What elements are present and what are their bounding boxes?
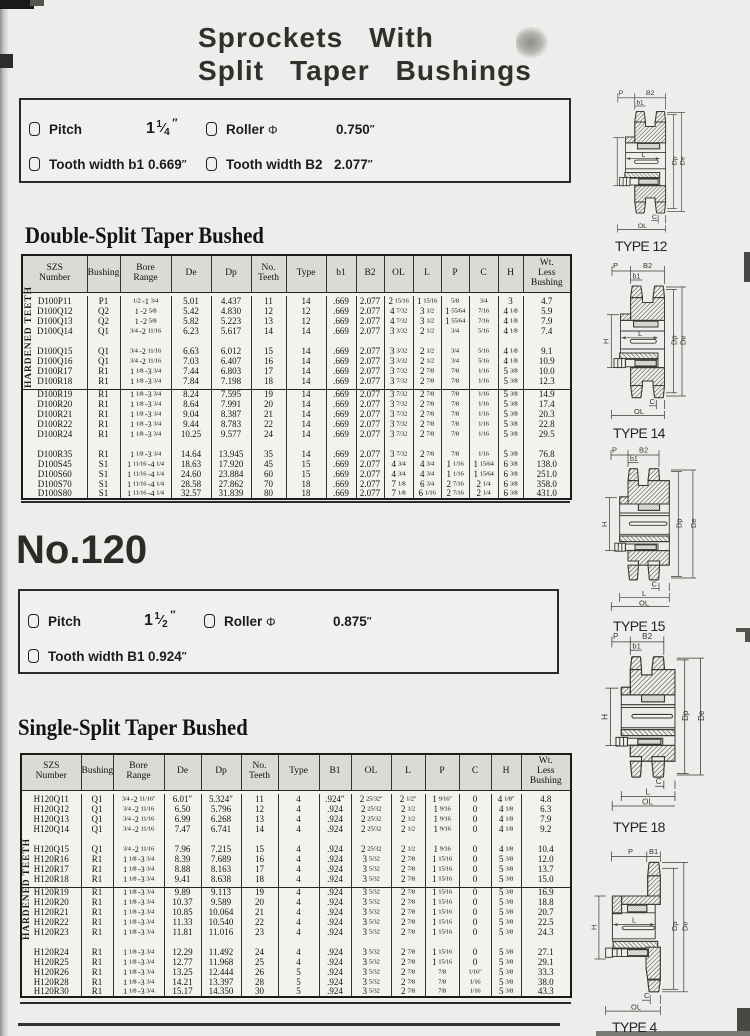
svg-text:B2: B2 — [646, 90, 655, 97]
svg-text:P: P — [628, 847, 633, 856]
svg-text:B1: B1 — [649, 847, 658, 856]
svg-text:Dp: Dp — [681, 710, 690, 721]
svg-text:H: H — [602, 339, 611, 344]
svg-text:OL: OL — [634, 407, 644, 416]
svg-text:b1: b1 — [632, 641, 640, 650]
svg-text:De: De — [680, 156, 687, 165]
svg-text:OL: OL — [638, 223, 647, 230]
svg-text:P: P — [619, 90, 624, 97]
svg-text:H: H — [601, 714, 610, 720]
svg-text:H: H — [600, 522, 609, 527]
svg-text:Dp: Dp — [670, 335, 679, 345]
svg-text:Dp: Dp — [675, 518, 684, 528]
svg-text:C: C — [656, 777, 662, 786]
svg-text:OL: OL — [642, 798, 653, 807]
svg-text:C: C — [652, 214, 657, 221]
svg-text:OL: OL — [639, 598, 649, 607]
svg-text:B2: B2 — [643, 261, 652, 270]
svg-text:P: P — [613, 632, 618, 641]
svg-text:L: L — [632, 916, 636, 925]
svg-text:H: H — [590, 925, 599, 930]
svg-text:B2: B2 — [639, 446, 648, 455]
svg-text:C: C — [644, 991, 650, 1000]
svg-text:P: P — [613, 261, 618, 270]
svg-text:L: L — [645, 788, 650, 797]
svg-text:De: De — [681, 921, 690, 931]
svg-text:Dp: Dp — [672, 156, 679, 165]
svg-text:De: De — [697, 710, 706, 721]
svg-text:Dp: Dp — [670, 921, 679, 931]
svg-text:b1: b1 — [630, 456, 638, 463]
svg-text:P: P — [612, 446, 617, 455]
svg-text:b1: b1 — [633, 274, 641, 281]
svg-text:L: L — [642, 589, 646, 598]
svg-text:De: De — [689, 518, 698, 528]
svg-text:B2: B2 — [642, 632, 652, 641]
svg-text:OL: OL — [631, 1003, 641, 1012]
svg-text:b1: b1 — [636, 100, 644, 107]
svg-text:De: De — [679, 335, 688, 345]
svg-text:C: C — [652, 580, 658, 589]
svg-text:L: L — [641, 152, 645, 159]
svg-text:L: L — [638, 329, 642, 338]
svg-text:C: C — [650, 397, 656, 406]
